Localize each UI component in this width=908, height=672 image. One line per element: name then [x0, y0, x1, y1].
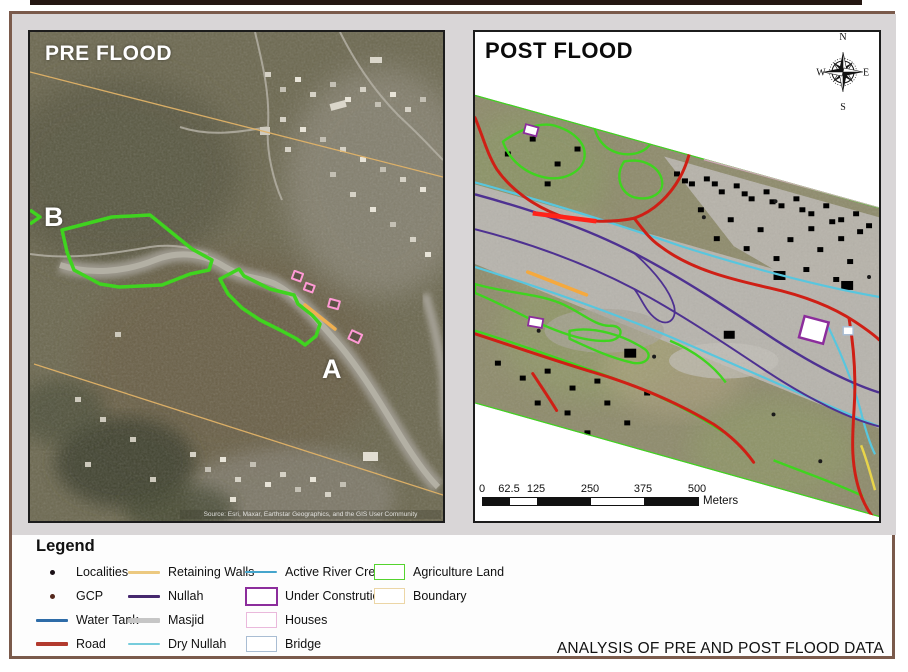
legend-label: Masjid: [168, 613, 204, 627]
scale-tick: 500: [688, 483, 706, 495]
legend-item-road: Road: [34, 632, 139, 656]
scale-tick: 125: [527, 483, 545, 495]
legend-title: Legend: [36, 537, 95, 556]
legend-item-water-tank: Water Tank: [34, 608, 139, 632]
under-construction-rect-symbol: [245, 587, 278, 606]
legend-column-1: Localities GCP Water Tank Road: [34, 560, 139, 656]
legend-label: Nullah: [168, 589, 203, 603]
legend-item-boundary: Boundary: [371, 584, 504, 608]
scale-bar: 0 62.5 125 250 375 500 Meters: [477, 483, 767, 513]
legend-item-masjid: Masjid: [126, 608, 254, 632]
nullah-line-symbol: [128, 595, 160, 598]
legend-item-under-construction: Under Constrution: [243, 584, 389, 608]
imagery-attribution: Source: Esri, Maxar, Earthstar Geographi…: [180, 510, 441, 519]
legend-label: Retaining Walls: [168, 565, 254, 579]
legend-item-retaining-walls: Retaining Walls: [126, 560, 254, 584]
legend-item-dry-nullah: Dry Nullah: [126, 632, 254, 656]
figure-page: PRE FLOOD B A Source: Esri, Maxar, Earth…: [0, 0, 908, 672]
legend-item-agriculture-land: Agriculture Land: [371, 560, 504, 584]
scale-tick: 62.5: [498, 483, 519, 495]
post-flood-title: POST FLOOD: [485, 38, 633, 64]
scale-unit-label: Meters: [703, 495, 738, 507]
legend-label: Dry Nullah: [168, 637, 226, 651]
top-accent-bar: [30, 0, 862, 5]
marker-a: A: [322, 354, 342, 385]
localities-dot-symbol: [50, 570, 55, 575]
masjid-line-symbol: [128, 618, 160, 623]
bridge-rect-symbol: [246, 636, 277, 652]
compass-star: [823, 52, 863, 92]
legend-label: Road: [76, 637, 106, 651]
legend-item-houses: Houses: [243, 608, 389, 632]
pre-flood-panel: PRE FLOOD B A Source: Esri, Maxar, Earth…: [28, 30, 445, 523]
pre-flood-title: PRE FLOOD: [45, 42, 172, 66]
legend-item-bridge: Bridge: [243, 632, 389, 656]
active-river-creek-line-symbol: [245, 571, 277, 574]
legend-column-3: Active River Creek Under Constrution Hou…: [243, 560, 389, 656]
compass-east-label: E: [863, 68, 869, 79]
analysis-caption: ANALYSIS OF PRE AND POST FLOOD DATA: [557, 640, 884, 658]
dry-nullah-line-symbol: [128, 643, 160, 646]
compass-north-label: N: [839, 32, 846, 43]
compass-rose: N S W E: [815, 30, 871, 114]
legend-label: Localities: [76, 565, 128, 579]
road-line-symbol: [36, 642, 68, 646]
legend-column-4: Agriculture Land Boundary: [371, 560, 504, 608]
water-tank-line-symbol: [36, 619, 68, 622]
agriculture-land-rect-symbol: [374, 564, 405, 580]
legend-label: Bridge: [285, 637, 321, 651]
scale-tick: 250: [581, 483, 599, 495]
scale-tick: 375: [634, 483, 652, 495]
boundary-rect-symbol: [374, 588, 405, 604]
gcp-dot-symbol: [50, 594, 55, 599]
legend-column-2: Retaining Walls Nullah Masjid Dry Nullah: [126, 560, 254, 656]
marker-b: B: [44, 202, 64, 233]
legend-item-gcp: GCP: [34, 584, 139, 608]
retaining-walls-line-symbol: [128, 571, 160, 574]
legend-item-localities: Localities: [34, 560, 139, 584]
scale-bar-segments: [482, 497, 699, 506]
houses-rect-symbol: [246, 612, 277, 628]
pre-flood-satellite-imagery: [30, 32, 443, 521]
legend-label: Houses: [285, 613, 327, 627]
legend-item-nullah: Nullah: [126, 584, 254, 608]
legend-label: Boundary: [413, 589, 467, 603]
legend-label: GCP: [76, 589, 103, 603]
scale-tick: 0: [479, 483, 485, 495]
legend-item-active-river-creek: Active River Creek: [243, 560, 389, 584]
legend-label: Agriculture Land: [413, 565, 504, 579]
compass-west-label: W: [816, 68, 826, 79]
compass-south-label: S: [840, 102, 846, 113]
